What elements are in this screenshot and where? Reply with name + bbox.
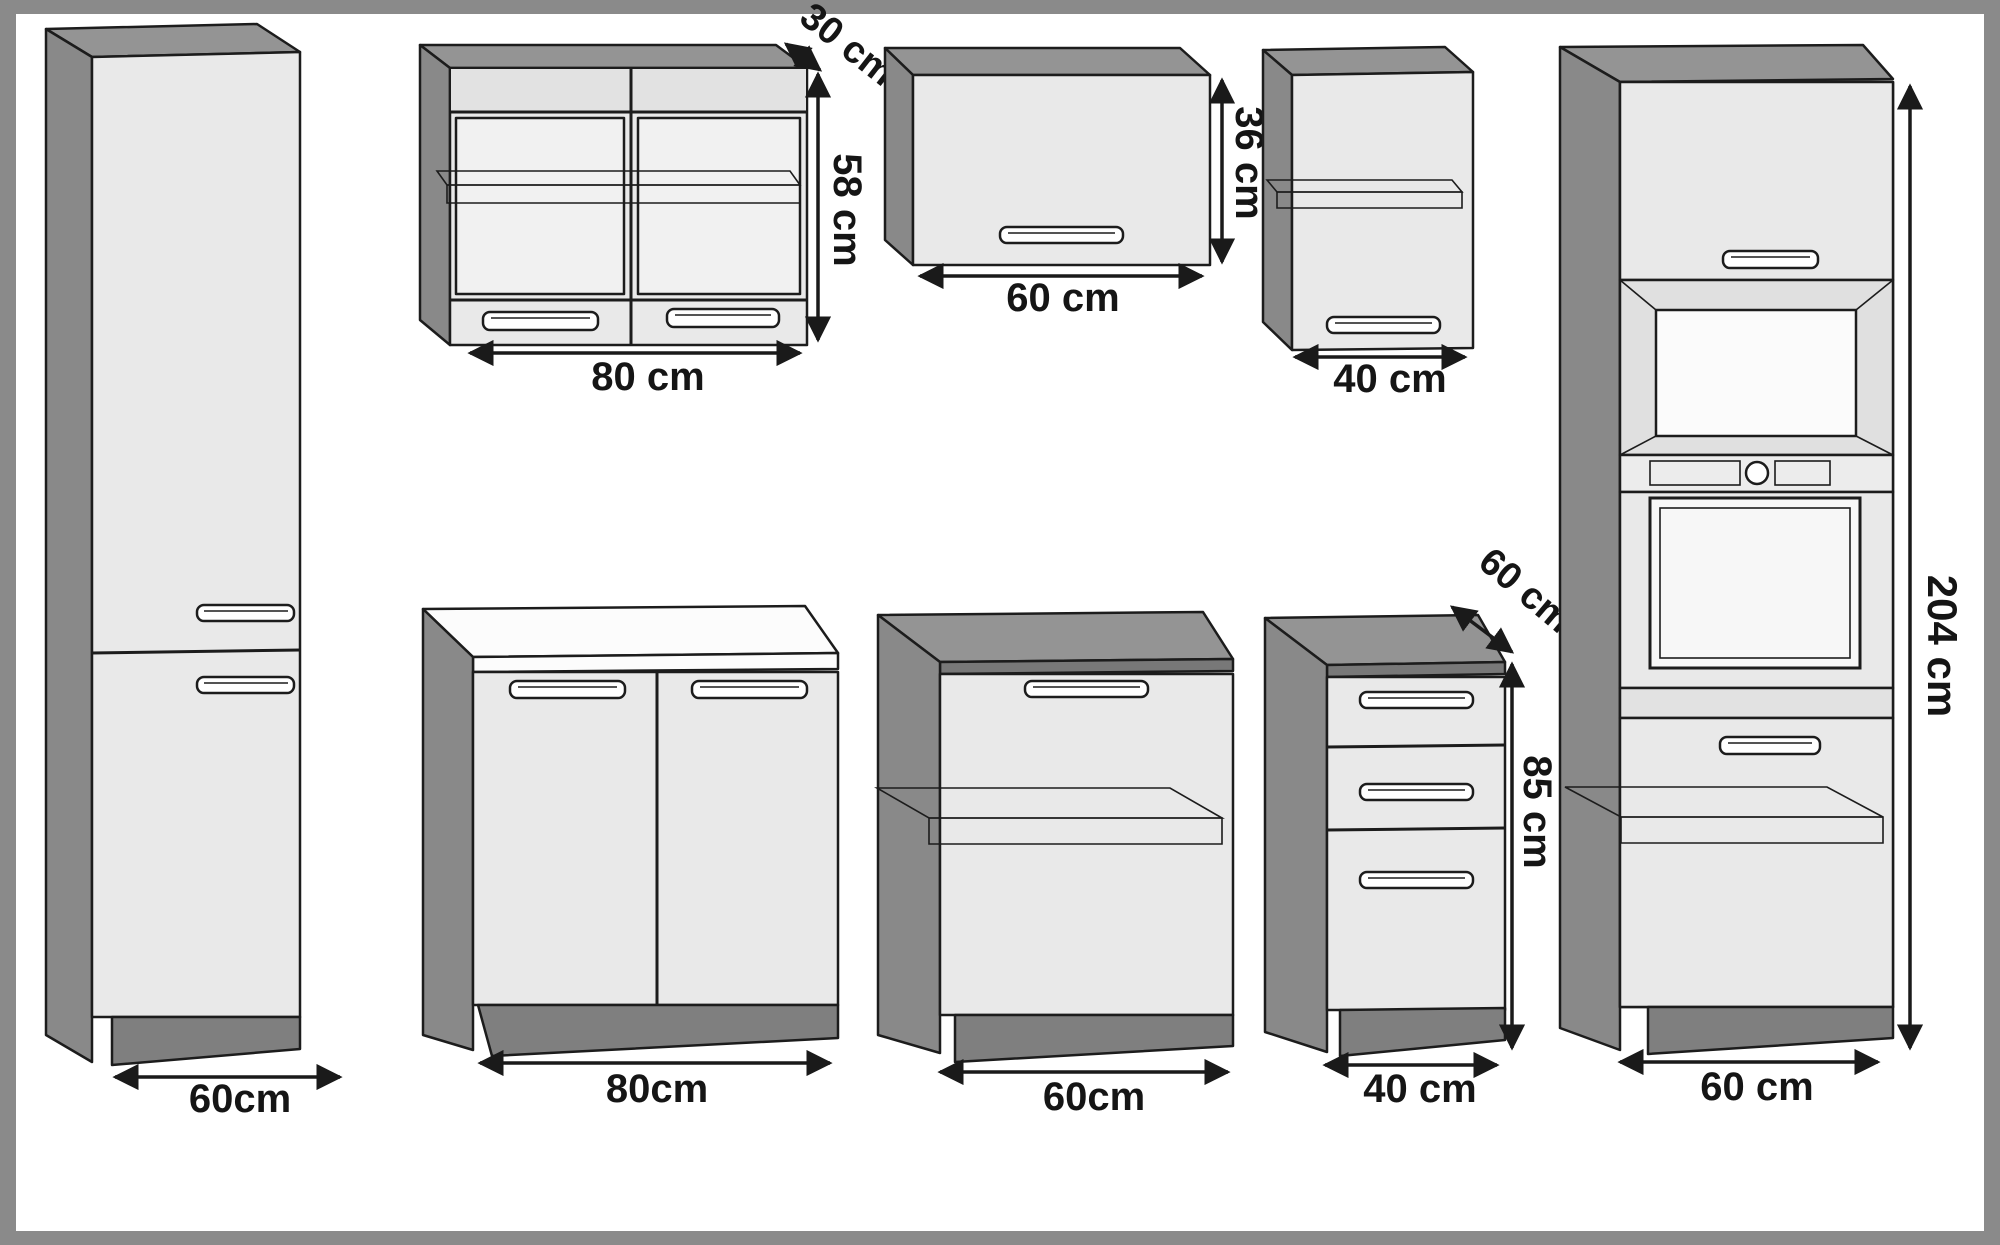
drawer-divider bbox=[1327, 828, 1505, 830]
door-handle bbox=[1723, 251, 1818, 268]
cabinet-door bbox=[1292, 72, 1473, 350]
diagram-canvas: 60cm 80 cm 58 cm 30 cm bbox=[0, 0, 2000, 1245]
door-handle bbox=[197, 677, 294, 693]
base-cabinet-80: 80cm bbox=[423, 606, 838, 1111]
glass-door-right bbox=[638, 118, 800, 294]
oven-door bbox=[1620, 492, 1893, 688]
oven-control-panel bbox=[1620, 455, 1893, 492]
drawer-stack-front bbox=[1327, 677, 1505, 1010]
cabinet-side-panel bbox=[420, 45, 450, 345]
lower-door bbox=[1620, 718, 1893, 1007]
drawer-handle bbox=[1360, 784, 1473, 800]
width-label: 60cm bbox=[1043, 1075, 1145, 1119]
tall-cabinet-left: 60cm bbox=[46, 24, 340, 1121]
cabinet-side-panel bbox=[1560, 47, 1620, 1050]
height-label: 58 cm bbox=[825, 153, 869, 266]
drawer-handle bbox=[1360, 872, 1473, 888]
glass-door-left bbox=[456, 118, 624, 294]
appliance-niche bbox=[1620, 280, 1893, 455]
door-handle bbox=[510, 681, 625, 698]
cabinet-side-panel bbox=[423, 609, 473, 1050]
door-handle bbox=[667, 309, 779, 327]
wall-cabinet-40: 40 cm bbox=[1263, 47, 1473, 401]
width-label: 60cm bbox=[189, 1077, 291, 1121]
worktop-edge bbox=[473, 653, 838, 672]
width-label: 40 cm bbox=[1333, 357, 1446, 401]
door-handle bbox=[692, 681, 807, 698]
width-label: 60 cm bbox=[1006, 276, 1119, 320]
cabinet-top-panel bbox=[1263, 47, 1473, 75]
door-handle bbox=[1000, 227, 1123, 243]
cabinet-side-panel bbox=[885, 48, 913, 265]
top-rail bbox=[451, 69, 806, 112]
height-label: 85 cm bbox=[1515, 755, 1559, 868]
cabinet-top-panel bbox=[885, 48, 1210, 75]
width-label: 40 cm bbox=[1363, 1067, 1476, 1111]
cabinet-side-panel bbox=[1265, 618, 1327, 1052]
height-label: 204 cm bbox=[1919, 575, 1966, 717]
door-handle bbox=[1720, 737, 1820, 754]
door-handle bbox=[1025, 681, 1148, 697]
top-edge-strip bbox=[1327, 662, 1505, 677]
door-handle bbox=[483, 312, 598, 330]
width-label: 80 cm bbox=[591, 355, 704, 399]
cabinet-dimension-diagram: 60cm 80 cm 58 cm 30 cm bbox=[0, 0, 2000, 1245]
spacer-band bbox=[1620, 688, 1893, 718]
cabinet-top-panel bbox=[420, 45, 807, 68]
door-handle bbox=[197, 605, 294, 621]
oven-knob bbox=[1746, 462, 1768, 484]
cabinet-side-panel bbox=[46, 29, 92, 1062]
drawer-handle bbox=[1360, 692, 1473, 708]
cabinet-front bbox=[92, 52, 300, 1017]
top-edge-strip bbox=[940, 659, 1233, 674]
niche-back-panel bbox=[1656, 310, 1856, 436]
width-label: 80cm bbox=[606, 1067, 708, 1111]
base-cabinet-60: 60cm bbox=[877, 612, 1233, 1119]
worktop-surface bbox=[423, 606, 838, 657]
width-label: 60 cm bbox=[1700, 1065, 1813, 1109]
drawer-divider bbox=[1327, 745, 1505, 747]
oven-window bbox=[1650, 498, 1860, 668]
cabinet-side-panel bbox=[878, 615, 940, 1053]
door-handle bbox=[1327, 317, 1440, 333]
